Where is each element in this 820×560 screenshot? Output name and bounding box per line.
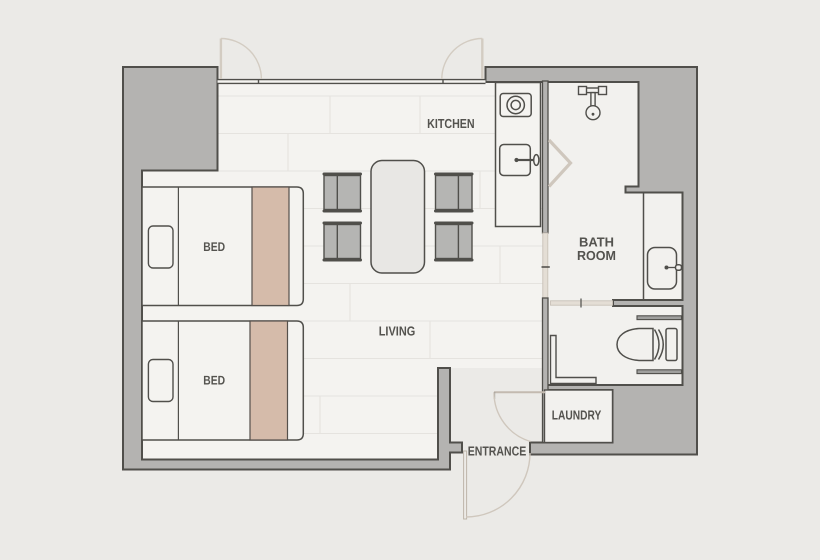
- svg-text:ENTRANCE: ENTRANCE: [468, 444, 527, 459]
- svg-text:ROOM: ROOM: [577, 248, 616, 263]
- svg-text:KITCHEN: KITCHEN: [427, 116, 475, 131]
- svg-text:BED: BED: [203, 373, 225, 387]
- svg-text:LIVING: LIVING: [379, 324, 416, 339]
- svg-text:LAUNDRY: LAUNDRY: [552, 408, 602, 423]
- svg-text:BED: BED: [203, 240, 225, 254]
